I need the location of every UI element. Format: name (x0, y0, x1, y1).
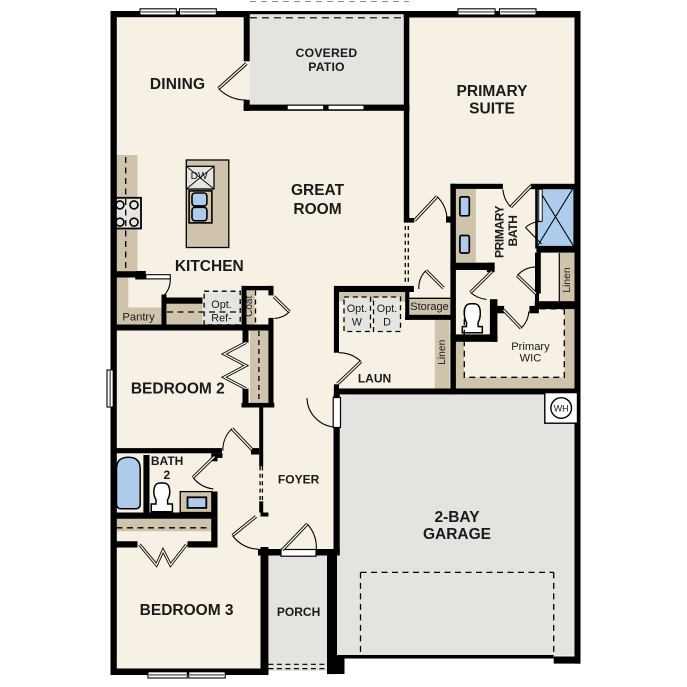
svg-text:PRIMARY: PRIMARY (457, 83, 529, 100)
svg-text:Storage: Storage (410, 301, 449, 313)
svg-text:DINING: DINING (150, 76, 205, 93)
svg-text:Pantry: Pantry (122, 311, 155, 323)
svg-text:KITCHEN: KITCHEN (175, 258, 244, 275)
svg-text:PORCH: PORCH (277, 605, 320, 619)
svg-text:LAUN: LAUN (358, 371, 391, 385)
svg-text:ROOM: ROOM (293, 201, 341, 218)
svg-text:Opt.: Opt. (211, 299, 231, 311)
svg-text:W: W (352, 317, 363, 329)
svg-text:GREAT: GREAT (291, 182, 345, 199)
svg-text:WIC: WIC (520, 353, 542, 365)
svg-text:Linen: Linen (562, 267, 573, 292)
svg-text:BEDROOM 3: BEDROOM 3 (140, 602, 234, 619)
svg-text:2: 2 (163, 468, 170, 482)
svg-text:Coat: Coat (244, 296, 255, 317)
svg-text:PRIMARY: PRIMARY (493, 205, 507, 257)
svg-text:BEDROOM 2: BEDROOM 2 (131, 381, 225, 398)
svg-text:WH: WH (554, 403, 569, 413)
svg-text:COVERED: COVERED (296, 46, 358, 60)
svg-text:SUITE: SUITE (469, 101, 515, 118)
svg-text:2-BAY: 2-BAY (434, 509, 480, 526)
svg-text:PATIO: PATIO (308, 60, 344, 74)
svg-text:DW: DW (191, 171, 208, 182)
svg-text:BATH: BATH (151, 454, 183, 468)
svg-text:Primary: Primary (511, 341, 550, 353)
svg-text:GARAGE: GARAGE (423, 526, 491, 543)
svg-text:Linen: Linen (437, 339, 448, 364)
svg-text:D: D (383, 317, 391, 329)
svg-text:FOYER: FOYER (278, 473, 320, 487)
svg-text:Opt.: Opt. (377, 303, 397, 315)
svg-text:Ref-: Ref- (211, 312, 232, 324)
svg-text:BATH: BATH (506, 215, 520, 246)
svg-text:Opt.: Opt. (347, 303, 367, 315)
